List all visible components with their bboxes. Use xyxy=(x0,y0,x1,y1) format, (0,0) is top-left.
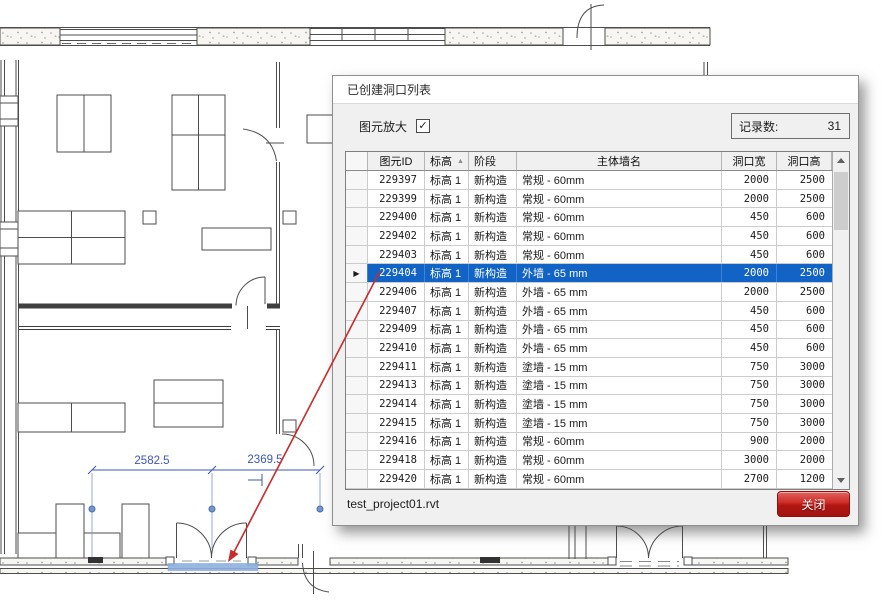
cell-element-id: 229406 xyxy=(368,283,425,301)
cell-opening-width: 750 xyxy=(722,414,777,432)
cell-phase: 新构造 xyxy=(469,264,517,282)
element-zoom-group: 图元放大 ✓ xyxy=(359,117,430,135)
cell-phase: 新构造 xyxy=(469,339,517,357)
window-left-upper xyxy=(0,96,18,126)
cell-opening-width: 750 xyxy=(722,377,777,395)
column-header-5[interactable]: 洞口高 xyxy=(777,152,832,170)
row-selector-cell[interactable]: ▶ xyxy=(346,264,368,282)
row-selector-cell[interactable] xyxy=(346,451,368,469)
cell-level: 标高 1 xyxy=(425,451,469,469)
table-row[interactable]: 229413标高 1新构造塗墙 - 15 mm7503000 xyxy=(346,377,832,396)
cell-opening-height: 600 xyxy=(777,302,832,320)
table-row[interactable]: 229414标高 1新构造塗墙 - 15 mm7503000 xyxy=(346,395,832,414)
cell-level: 标高 1 xyxy=(425,358,469,376)
cell-host-wall: 塗墙 - 15 mm xyxy=(517,358,722,376)
cell-opening-width: 450 xyxy=(722,302,777,320)
cell-element-id: 229416 xyxy=(368,433,425,451)
cell-opening-height: 2000 xyxy=(777,451,832,469)
cell-element-id: 229400 xyxy=(368,208,425,226)
cell-host-wall: 外墙 - 65 mm xyxy=(517,264,722,282)
window-top-left xyxy=(60,30,197,44)
cell-host-wall: 常规 - 60mm xyxy=(517,470,722,488)
cell-level: 标高 1 xyxy=(425,470,469,488)
row-selector-cell[interactable] xyxy=(346,246,368,264)
table-row[interactable]: 229399标高 1新构造常规 - 60mm20002500 xyxy=(346,190,832,209)
row-selector-cell[interactable] xyxy=(346,321,368,339)
table-row[interactable]: 229420标高 1新构造常规 - 60mm27001200 xyxy=(346,470,832,489)
row-selector-cell[interactable] xyxy=(346,470,368,488)
table-row[interactable]: 229411标高 1新构造塗墙 - 15 mm7503000 xyxy=(346,358,832,377)
app-canvas: 2582.5 2369.5 已创建洞口列表 图元放大 ✓ 记录数: 31 图元I… xyxy=(0,0,890,610)
table-row[interactable]: 229400标高 1新构造常规 - 60mm450600 xyxy=(346,208,832,227)
cell-level: 标高 1 xyxy=(425,433,469,451)
cell-opening-width: 450 xyxy=(722,246,777,264)
record-count-value: 31 xyxy=(828,119,841,133)
cell-host-wall: 常规 - 60mm xyxy=(517,246,722,264)
cell-phase: 新构造 xyxy=(469,208,517,226)
cell-element-id: 229410 xyxy=(368,339,425,357)
cell-opening-width: 2000 xyxy=(722,190,777,208)
cell-opening-height: 3000 xyxy=(777,395,832,413)
cell-level: 标高 1 xyxy=(425,171,469,189)
cell-opening-height: 3000 xyxy=(777,414,832,432)
table-row[interactable]: 229397标高 1新构造常规 - 60mm20002500 xyxy=(346,171,832,190)
cell-host-wall: 常规 - 60mm xyxy=(517,171,722,189)
cell-opening-height: 2000 xyxy=(777,433,832,451)
column-header-4[interactable]: 洞口宽 xyxy=(722,152,777,170)
element-zoom-label: 图元放大 xyxy=(359,118,407,135)
row-selector-cell[interactable] xyxy=(346,433,368,451)
cell-phase: 新构造 xyxy=(469,433,517,451)
dialog-title: 已创建洞口列表 xyxy=(347,83,431,97)
cell-host-wall: 外墙 - 65 mm xyxy=(517,302,722,320)
scroll-down-icon[interactable] xyxy=(833,472,849,489)
window-top-middle xyxy=(310,29,445,41)
cell-level: 标高 1 xyxy=(425,264,469,282)
dimension-value-right: 2369.5 xyxy=(247,454,282,466)
cell-opening-height: 600 xyxy=(777,246,832,264)
cell-phase: 新构造 xyxy=(469,302,517,320)
cell-level: 标高 1 xyxy=(425,283,469,301)
interior-walls xyxy=(18,277,280,330)
cell-opening-width: 750 xyxy=(722,395,777,413)
table-row[interactable]: 229416标高 1新构造常规 - 60mm9002000 xyxy=(346,433,832,452)
dialog-controls: 图元放大 ✓ 记录数: 31 xyxy=(333,105,858,149)
table-row[interactable]: 229406标高 1新构造外墙 - 65 mm20002500 xyxy=(346,283,832,302)
row-selector-cell[interactable] xyxy=(346,302,368,320)
openings-table: 图元ID标高▲阶段主体墙名洞口宽洞口高229397标高 1新构造常规 - 60m… xyxy=(345,151,850,490)
cell-opening-width: 450 xyxy=(722,227,777,245)
cell-opening-height: 2500 xyxy=(777,190,832,208)
cell-element-id: 229411 xyxy=(368,358,425,376)
cell-level: 标高 1 xyxy=(425,227,469,245)
cell-level: 标高 1 xyxy=(425,190,469,208)
cell-element-id: 229413 xyxy=(368,377,425,395)
cell-phase: 新构造 xyxy=(469,395,517,413)
cell-opening-width: 2000 xyxy=(722,171,777,189)
cell-opening-height: 600 xyxy=(777,227,832,245)
row-selector-cell[interactable] xyxy=(346,208,368,226)
column-header-1[interactable]: 标高▲ xyxy=(425,152,469,170)
row-selector-cell[interactable] xyxy=(346,227,368,245)
dimension-grip xyxy=(89,506,95,512)
row-selector-cell[interactable] xyxy=(346,358,368,376)
table-header-row: 图元ID标高▲阶段主体墙名洞口宽洞口高 xyxy=(346,152,832,171)
cell-opening-height: 2500 xyxy=(777,264,832,282)
window-left-lower xyxy=(0,222,18,256)
cell-level: 标高 1 xyxy=(425,321,469,339)
cell-host-wall: 塗墙 - 15 mm xyxy=(517,377,722,395)
cell-opening-width: 900 xyxy=(722,433,777,451)
door-central-lower xyxy=(282,420,314,466)
close-button[interactable]: 关闭 xyxy=(777,491,850,517)
table-row[interactable]: 229415标高 1新构造塗墙 - 15 mm7503000 xyxy=(346,414,832,433)
row-selector-cell[interactable] xyxy=(346,190,368,208)
left-exterior-wall xyxy=(0,60,19,554)
cell-host-wall: 常规 - 60mm xyxy=(517,190,722,208)
cell-element-id: 229415 xyxy=(368,414,425,432)
cell-phase: 新构造 xyxy=(469,190,517,208)
cell-host-wall: 外墙 - 65 mm xyxy=(517,283,722,301)
sort-ascending-icon: ▲ xyxy=(457,158,464,165)
row-selector-cell[interactable] xyxy=(346,283,368,301)
cell-opening-height: 3000 xyxy=(777,358,832,376)
cell-phase: 新构造 xyxy=(469,227,517,245)
dimension-grip xyxy=(209,506,215,512)
cell-host-wall: 塗墙 - 15 mm xyxy=(517,414,722,432)
record-count-box: 记录数: 31 xyxy=(731,113,850,139)
cell-host-wall: 塗墙 - 15 mm xyxy=(517,395,722,413)
cell-opening-height: 600 xyxy=(777,208,832,226)
cell-host-wall: 外墙 - 65 mm xyxy=(517,339,722,357)
central-wall xyxy=(243,62,314,466)
cell-phase: 新构造 xyxy=(469,358,517,376)
row-selector-header xyxy=(346,152,368,170)
cell-level: 标高 1 xyxy=(425,377,469,395)
scrollbar-thumb[interactable] xyxy=(834,172,848,230)
cell-element-id: 229420 xyxy=(368,470,425,488)
cell-level: 标高 1 xyxy=(425,246,469,264)
cell-element-id: 229409 xyxy=(368,321,425,339)
double-door-bottom-left xyxy=(166,523,256,565)
cell-phase: 新构造 xyxy=(469,377,517,395)
project-file-name: test_project01.rvt xyxy=(347,497,439,511)
cell-level: 标高 1 xyxy=(425,395,469,413)
cell-element-id: 229418 xyxy=(368,451,425,469)
cell-host-wall: 常规 - 60mm xyxy=(517,227,722,245)
row-selector-cell[interactable] xyxy=(346,395,368,413)
cell-phase: 新构造 xyxy=(469,451,517,469)
table-row[interactable]: 229410标高 1新构造外墙 - 65 mm450600 xyxy=(346,339,832,358)
door-central-upper xyxy=(243,129,284,161)
dimension-grip xyxy=(317,506,323,512)
cell-host-wall: 外墙 - 65 mm xyxy=(517,321,722,339)
record-count-label: 记录数: xyxy=(739,118,778,135)
cell-level: 标高 1 xyxy=(425,302,469,320)
cell-element-id: 229399 xyxy=(368,190,425,208)
table-row[interactable]: 229418标高 1新构造常规 - 60mm30002000 xyxy=(346,451,832,470)
cell-phase: 新构造 xyxy=(469,470,517,488)
cell-host-wall: 常规 - 60mm xyxy=(517,208,722,226)
column-header-0[interactable]: 图元ID xyxy=(368,152,425,170)
cell-opening-height: 3000 xyxy=(777,377,832,395)
door-interior xyxy=(236,277,265,329)
cell-phase: 新构造 xyxy=(469,321,517,339)
cell-opening-width: 450 xyxy=(722,208,777,226)
cell-host-wall: 常规 - 60mm xyxy=(517,451,722,469)
table-row[interactable]: 229402标高 1新构造常规 - 60mm450600 xyxy=(346,227,832,246)
cell-opening-height: 600 xyxy=(777,339,832,357)
element-zoom-checkbox[interactable]: ✓ xyxy=(416,119,430,133)
cell-level: 标高 1 xyxy=(425,339,469,357)
scroll-up-icon[interactable] xyxy=(833,152,849,169)
cell-opening-height: 600 xyxy=(777,321,832,339)
table-scrollbar[interactable] xyxy=(832,152,849,489)
cell-opening-height: 2500 xyxy=(777,171,832,189)
row-selector-cell[interactable] xyxy=(346,414,368,432)
double-door-bottom-right xyxy=(608,526,692,566)
cell-opening-height: 1200 xyxy=(777,470,832,488)
cell-host-wall: 常规 - 60mm xyxy=(517,433,722,451)
opening-list-dialog: 已创建洞口列表 图元放大 ✓ 记录数: 31 图元ID标高▲阶段主体墙名洞口宽洞… xyxy=(332,75,859,526)
cell-element-id: 229414 xyxy=(368,395,425,413)
current-row-marker-icon: ▶ xyxy=(353,269,359,278)
table-row-selected[interactable]: ▶229404标高 1新构造外墙 - 65 mm20002500 xyxy=(346,264,832,283)
column-header-2[interactable]: 阶段 xyxy=(469,152,517,170)
row-selector-cell[interactable] xyxy=(346,377,368,395)
row-selector-cell[interactable] xyxy=(346,171,368,189)
row-selector-cell[interactable] xyxy=(346,339,368,357)
cell-phase: 新构造 xyxy=(469,171,517,189)
cell-element-id: 229407 xyxy=(368,302,425,320)
cell-opening-width: 450 xyxy=(722,321,777,339)
cell-opening-height: 2500 xyxy=(777,283,832,301)
cell-opening-width: 2000 xyxy=(722,283,777,301)
selected-opening-highlight[interactable] xyxy=(168,564,258,571)
cell-opening-width: 3000 xyxy=(722,451,777,469)
cell-element-id: 229397 xyxy=(368,171,425,189)
cell-opening-width: 2000 xyxy=(722,264,777,282)
cell-element-id: 229403 xyxy=(368,246,425,264)
cell-element-id: 229402 xyxy=(368,227,425,245)
table-row[interactable]: 229407标高 1新构造外墙 - 65 mm450600 xyxy=(346,302,832,321)
cell-level: 标高 1 xyxy=(425,208,469,226)
cell-level: 标高 1 xyxy=(425,414,469,432)
dimension-value-left: 2582.5 xyxy=(134,455,169,467)
dialog-title-bar[interactable]: 已创建洞口列表 xyxy=(333,76,858,104)
cell-phase: 新构造 xyxy=(469,283,517,301)
cell-phase: 新构造 xyxy=(469,414,517,432)
table-row[interactable]: 229403标高 1新构造常规 - 60mm450600 xyxy=(346,246,832,265)
cell-element-id: 229404 xyxy=(368,264,425,282)
table-row[interactable]: 229409标高 1新构造外墙 - 65 mm450600 xyxy=(346,321,832,340)
column-header-3[interactable]: 主体墙名 xyxy=(517,152,722,170)
cell-opening-width: 450 xyxy=(722,339,777,357)
cell-opening-width: 2700 xyxy=(722,470,777,488)
cell-phase: 新构造 xyxy=(469,246,517,264)
cell-opening-width: 750 xyxy=(722,358,777,376)
